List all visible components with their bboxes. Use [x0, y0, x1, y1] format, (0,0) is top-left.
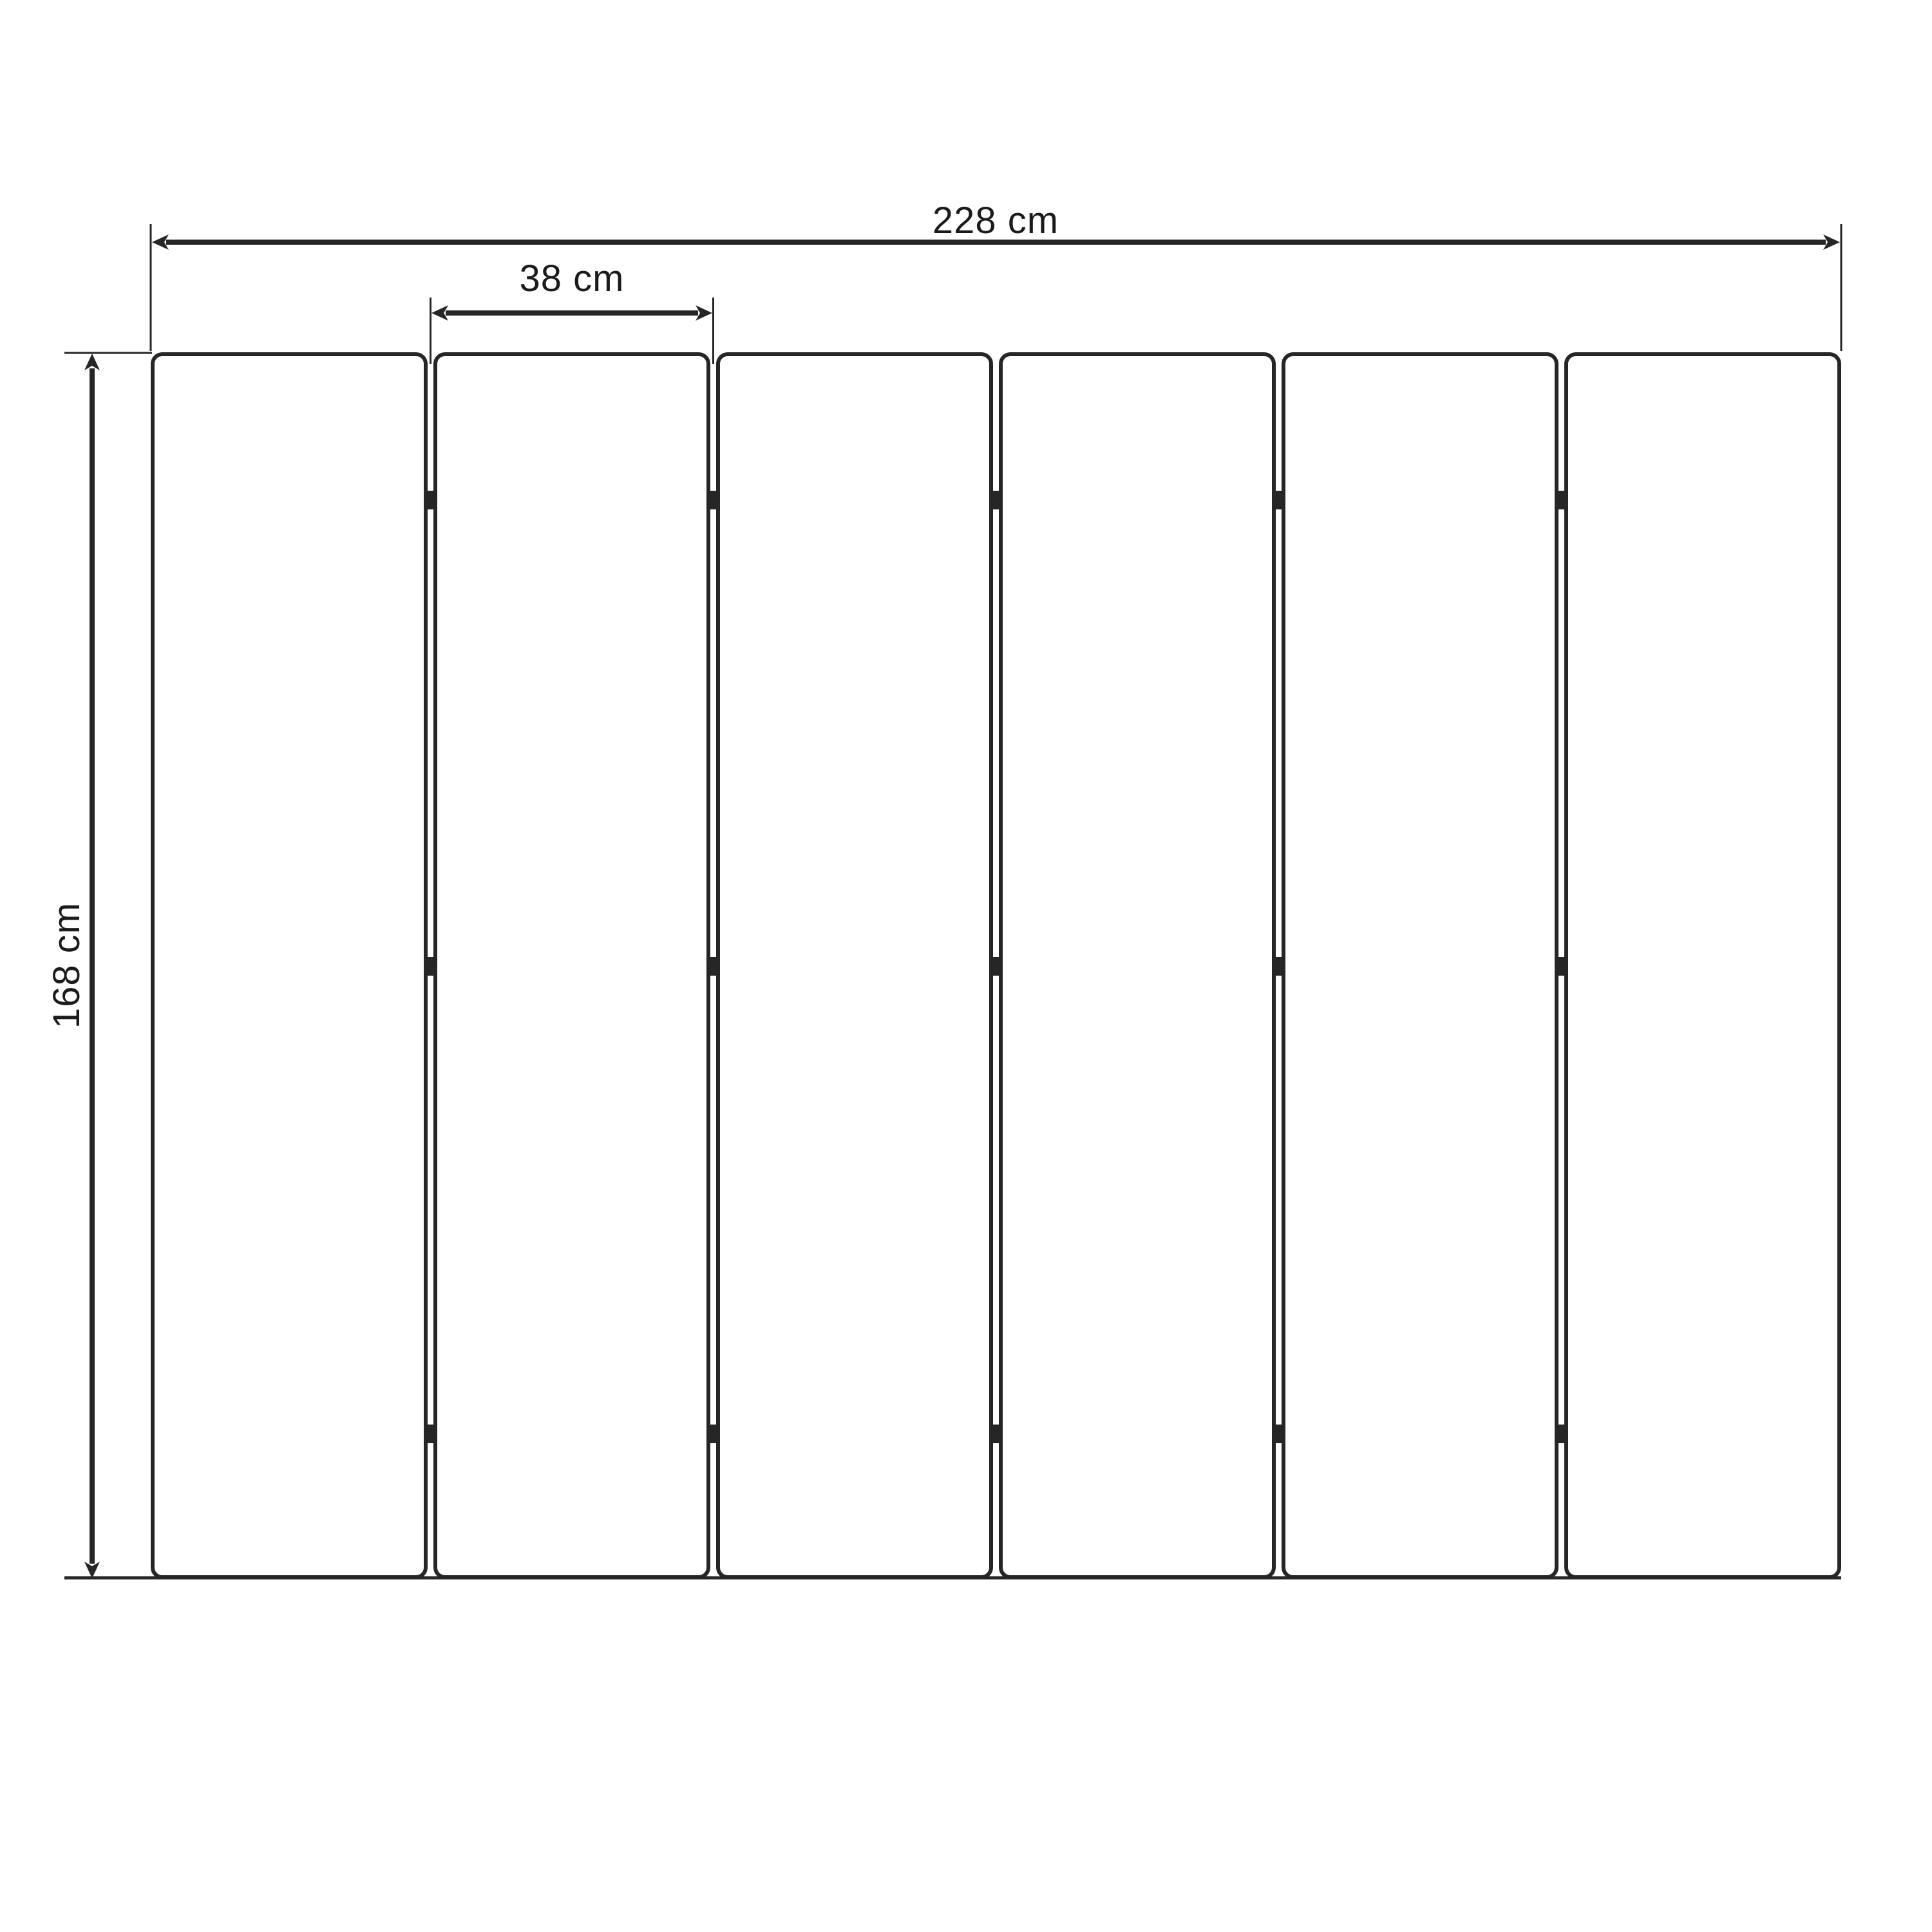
hinge	[426, 957, 435, 976]
total-width-label: 228 cm	[933, 202, 1059, 240]
hinge	[992, 957, 1000, 976]
panel	[1564, 352, 1841, 1579]
dimension-drawing-canvas: 228 cm 38 cm 168 cm	[0, 0, 1932, 1932]
hinge	[1274, 491, 1283, 509]
panel	[999, 352, 1276, 1579]
hinge	[426, 491, 435, 509]
panel	[433, 352, 710, 1579]
hinge	[1274, 957, 1283, 976]
hinge	[1557, 1425, 1566, 1443]
hinge	[709, 957, 717, 976]
panel-width-label: 38 cm	[520, 260, 625, 298]
arrow-down-icon	[84, 1562, 100, 1578]
height-label: 168 cm	[48, 902, 86, 1028]
total-width-dimension	[151, 224, 1841, 351]
hinge	[709, 1425, 717, 1443]
hinge	[1557, 491, 1566, 509]
arrow-up-icon	[84, 354, 100, 370]
hinge	[1274, 1425, 1283, 1443]
hinge	[1557, 957, 1566, 976]
hinge	[992, 491, 1000, 509]
panel	[151, 352, 428, 1579]
hinge	[709, 491, 717, 509]
hinge	[426, 1425, 435, 1443]
panel	[1282, 352, 1558, 1579]
panel	[716, 352, 993, 1579]
hinge	[992, 1425, 1000, 1443]
